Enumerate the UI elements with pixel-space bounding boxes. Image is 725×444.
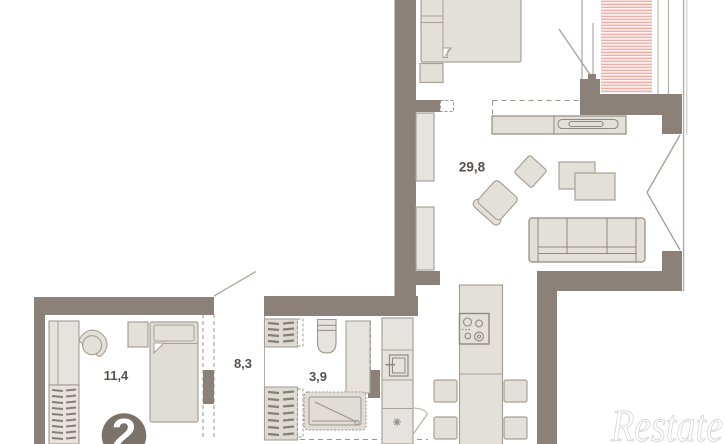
svg-text:29,8: 29,8 bbox=[459, 160, 486, 175]
svg-text:3,9: 3,9 bbox=[309, 369, 327, 384]
svg-text:11,4: 11,4 bbox=[104, 368, 129, 383]
svg-text:2: 2 bbox=[112, 410, 136, 444]
svg-text:Restate: Restate bbox=[610, 400, 723, 444]
svg-text:8,3: 8,3 bbox=[234, 356, 252, 371]
